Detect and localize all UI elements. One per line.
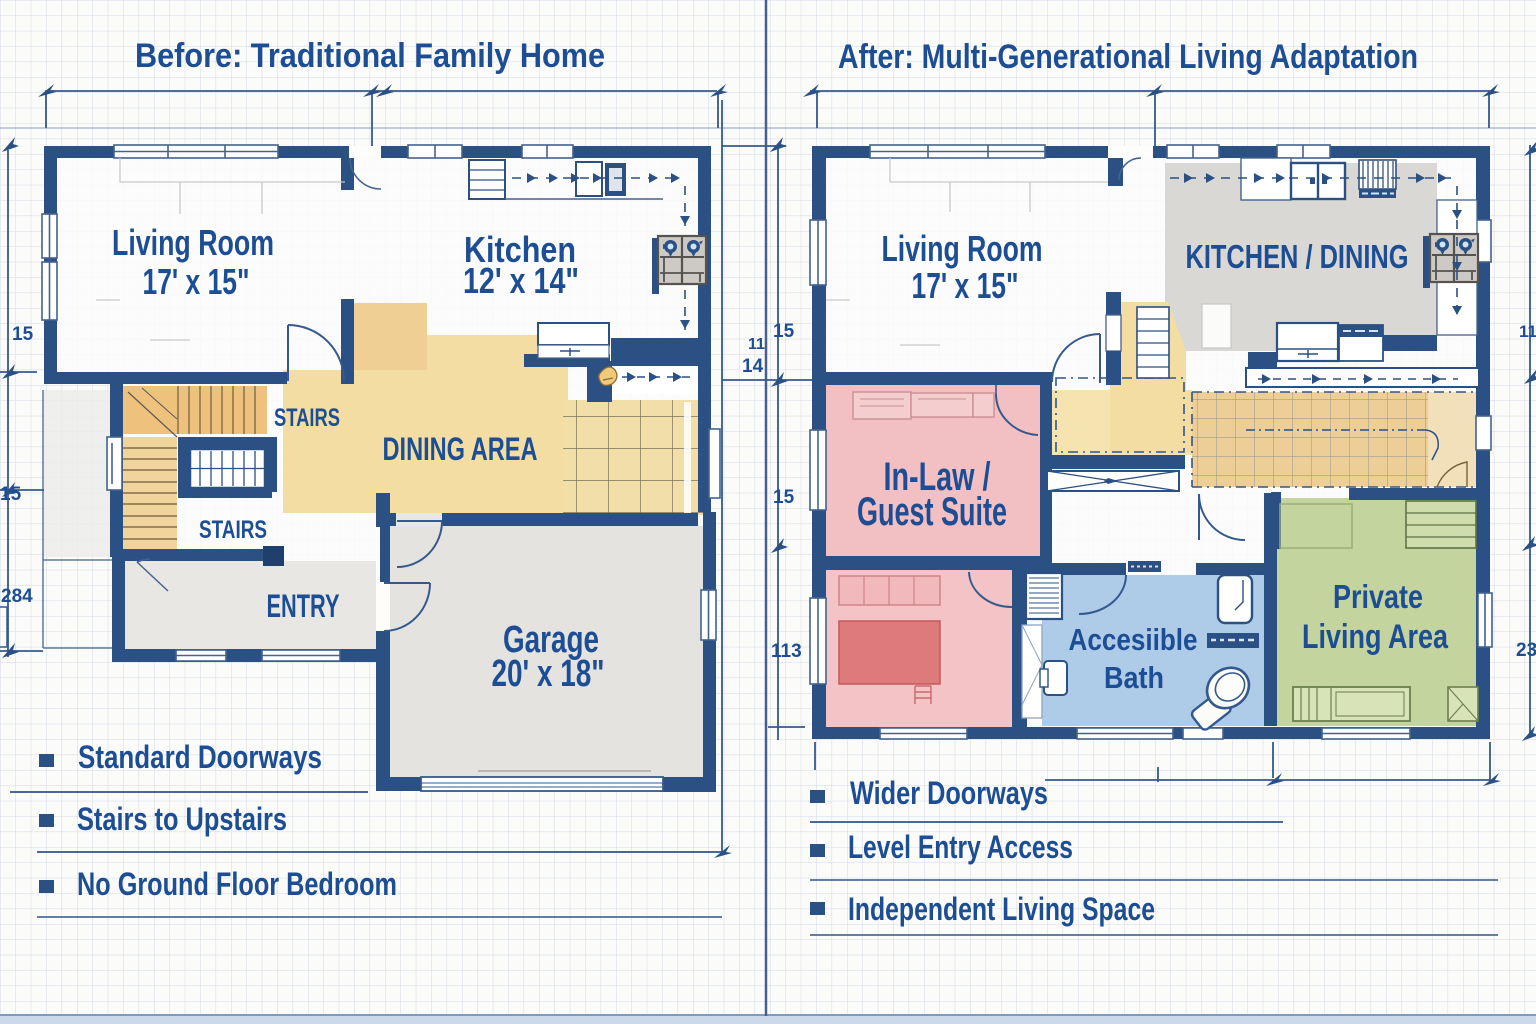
svg-text:KITCHEN / DINING: KITCHEN / DINING [1186, 238, 1409, 275]
svg-text:DINING AREA: DINING AREA [383, 431, 538, 467]
svg-text:Before: Traditional Family Hom: Before: Traditional Family Home [135, 37, 605, 75]
svg-text:After: Multi-Generational Livi: After: Multi-Generational Living Adaptat… [838, 38, 1418, 76]
svg-text:STAIRS: STAIRS [274, 404, 340, 432]
svg-text:Guest Suite: Guest Suite [857, 490, 1007, 534]
svg-text:11: 11 [1519, 322, 1536, 341]
svg-text:Private: Private [1333, 578, 1423, 615]
svg-text:Living Room: Living Room [882, 228, 1043, 269]
svg-text:ENTRY: ENTRY [267, 588, 340, 624]
svg-text:17' x 15": 17' x 15" [143, 261, 250, 302]
svg-text:20' x 18": 20' x 18" [492, 653, 605, 695]
svg-text:Living Room: Living Room [112, 222, 274, 263]
svg-text:15: 15 [773, 487, 795, 508]
svg-text:Independent Living Space: Independent Living Space [848, 891, 1155, 927]
svg-text:Level Entry Access: Level Entry Access [848, 829, 1073, 865]
svg-text:15: 15 [12, 324, 34, 345]
svg-text:Standard Doorways: Standard Doorways [78, 739, 322, 775]
svg-text:284: 284 [1, 586, 33, 607]
svg-text:15: 15 [773, 321, 795, 342]
svg-text:STAIRS: STAIRS [199, 516, 267, 544]
svg-text:17' x 15": 17' x 15" [912, 265, 1019, 306]
svg-text:113: 113 [771, 641, 802, 662]
svg-text:23: 23 [1516, 640, 1536, 661]
svg-text:Stairs to Upstairs: Stairs to Upstairs [77, 801, 287, 837]
svg-text:11: 11 [748, 336, 765, 353]
svg-text:No Ground Floor Bedroom: No Ground Floor Bedroom [77, 866, 397, 902]
svg-text:Accesiible: Accesiible [1069, 622, 1198, 657]
svg-text:15: 15 [0, 484, 22, 505]
svg-text:Wider Doorways: Wider Doorways [850, 775, 1048, 811]
svg-text:Bath: Bath [1104, 660, 1164, 695]
svg-text:Living Area: Living Area [1302, 618, 1449, 656]
svg-text:14: 14 [742, 356, 764, 377]
svg-text:12' x 14": 12' x 14" [463, 260, 579, 301]
